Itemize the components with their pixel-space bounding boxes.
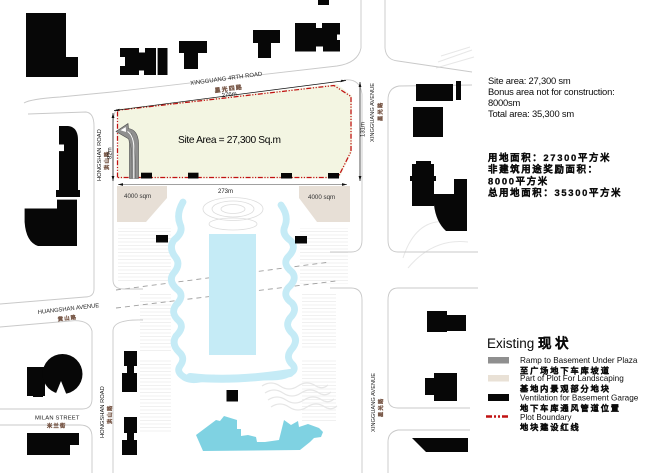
- svg-text:273m: 273m: [218, 189, 233, 195]
- svg-text:用地面积：27300平方米: 用地面积：27300平方米: [487, 152, 611, 163]
- svg-text:星光路: 星光路: [376, 102, 384, 121]
- svg-text:4000 sqm: 4000 sqm: [308, 194, 335, 201]
- svg-text:星光路: 星光路: [377, 398, 385, 417]
- svg-text:Plot Boundary: Plot Boundary: [520, 413, 572, 422]
- svg-text:XINGGUANG AVENUE: XINGGUANG AVENUE: [371, 373, 377, 432]
- svg-text:Ventilation for Basement Garag: Ventilation for Basement Garage: [520, 394, 639, 403]
- svg-text:HONGSHAN ROAD: HONGSHAN ROAD: [100, 386, 106, 438]
- svg-text:非建筑用途奖励面积：: 非建筑用途奖励面积：: [488, 164, 599, 175]
- svg-text:洪山路: 洪山路: [106, 405, 114, 424]
- svg-text:82m: 82m: [108, 147, 114, 159]
- svg-text:基地内景观部分地块: 基地内景观部分地块: [519, 384, 611, 394]
- svg-text:8000平方米: 8000平方米: [488, 175, 549, 186]
- svg-text:131m: 131m: [361, 122, 367, 137]
- svg-text:HONGSHAN ROAD: HONGSHAN ROAD: [97, 129, 103, 181]
- svg-text:米兰街: 米兰街: [47, 422, 66, 430]
- svg-text:总用地面积：35300平方米: 总用地面积：35300平方米: [488, 187, 622, 198]
- svg-text:Part of Plot For Landscaping: Part of Plot For Landscaping: [520, 374, 624, 383]
- svg-text:Ramp to Basement Under Plaza: Ramp to Basement Under Plaza: [520, 356, 638, 365]
- svg-text:Existing 现状: Existing 现状: [487, 335, 572, 351]
- svg-text:XINGGUANG AVENUE: XINGGUANG AVENUE: [370, 83, 376, 142]
- svg-text:Total area: 35,300 sm: Total area: 35,300 sm: [488, 108, 574, 119]
- svg-text:MILAN STREET: MILAN STREET: [35, 416, 80, 422]
- svg-text:Site area: 27,300 sm: Site area: 27,300 sm: [488, 75, 571, 86]
- svg-text:8000sm: 8000sm: [488, 97, 521, 108]
- svg-text:Site Area = 27,300 Sq.m: Site Area = 27,300 Sq.m: [178, 135, 281, 146]
- svg-text:地下车库通风管道位置: 地下车库通风管道位置: [520, 403, 621, 413]
- svg-text:4000 sqm: 4000 sqm: [124, 193, 151, 200]
- svg-text:Bonus area not for constructio: Bonus area not for construction:: [488, 86, 615, 97]
- svg-text:地块建设红线: 地块建设红线: [520, 422, 581, 432]
